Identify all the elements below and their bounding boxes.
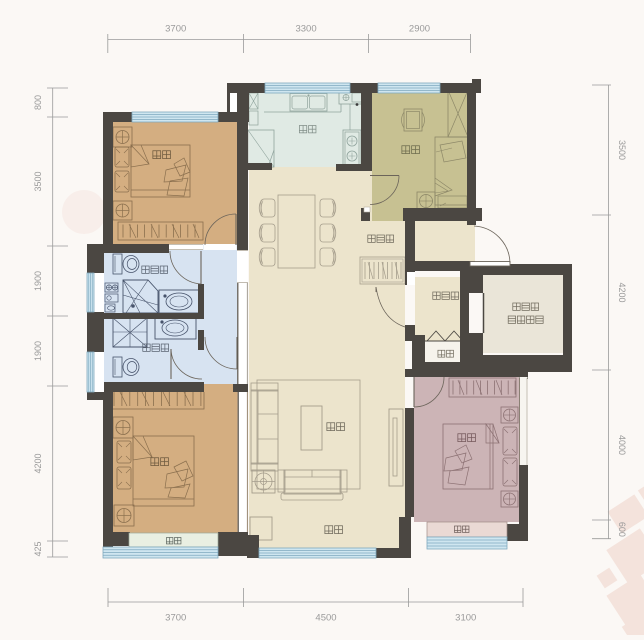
svg-text:4500: 4500 xyxy=(315,613,336,624)
svg-text:600: 600 xyxy=(617,522,627,537)
svg-text:1900: 1900 xyxy=(33,271,43,291)
svg-text:800: 800 xyxy=(33,95,43,110)
svg-text:3100: 3100 xyxy=(455,613,476,624)
svg-text:4000: 4000 xyxy=(617,435,627,455)
svg-text:4200: 4200 xyxy=(617,282,627,302)
svg-text:4200: 4200 xyxy=(33,453,43,473)
svg-text:3500: 3500 xyxy=(33,171,43,191)
svg-text:3500: 3500 xyxy=(617,140,627,160)
svg-text:3300: 3300 xyxy=(295,24,316,35)
svg-text:425: 425 xyxy=(33,541,43,556)
svg-text:2900: 2900 xyxy=(409,24,430,35)
svg-text:3700: 3700 xyxy=(165,613,186,624)
svg-text:3700: 3700 xyxy=(165,24,186,35)
svg-text:1900: 1900 xyxy=(33,341,43,361)
